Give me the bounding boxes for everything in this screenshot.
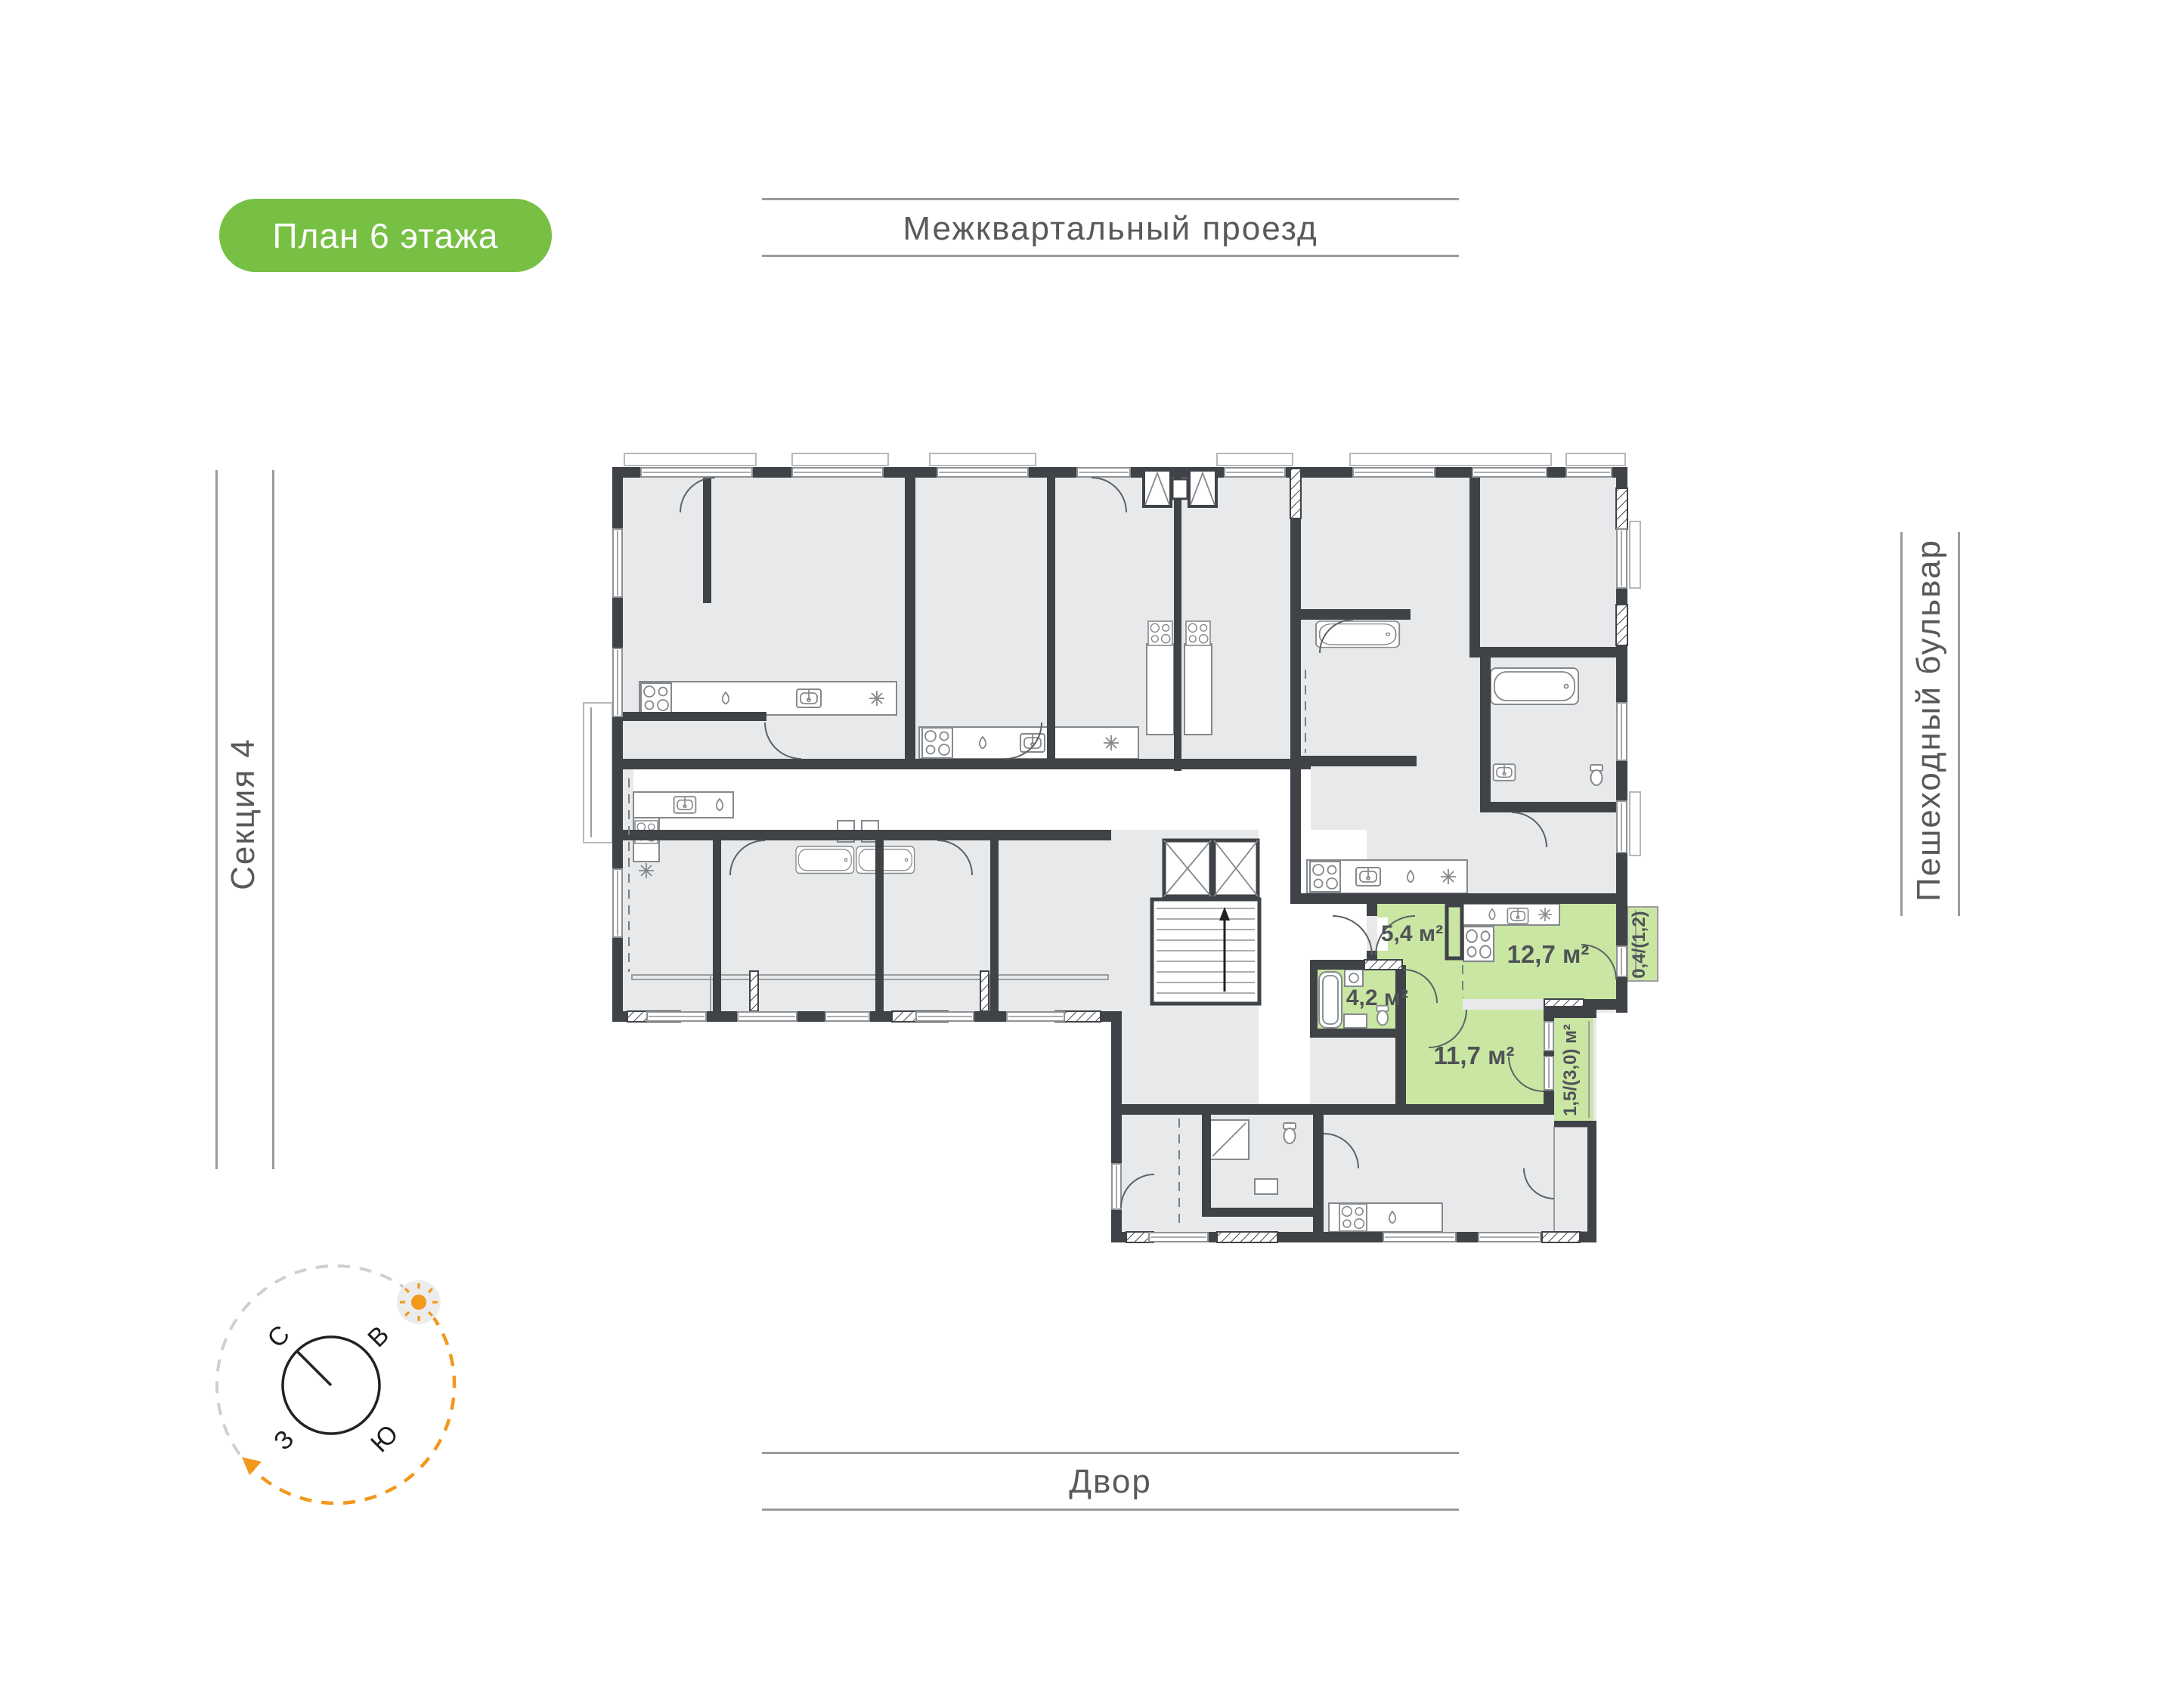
bedroom-area-label: 11,7 м² bbox=[1434, 1041, 1515, 1069]
stove-icon bbox=[1310, 862, 1340, 892]
kitchen-balcony-label: 0,4/(1,2) bbox=[1629, 911, 1649, 978]
fridge-icon bbox=[869, 691, 884, 706]
compass-east: В bbox=[362, 1320, 395, 1353]
washer-icon bbox=[1345, 970, 1363, 986]
bathtub bbox=[856, 846, 915, 874]
left-balcony bbox=[584, 703, 612, 843]
stove-icon bbox=[1148, 621, 1172, 645]
stove-icon bbox=[1463, 927, 1494, 961]
bathroom-area-label: 4,2 м² bbox=[1346, 986, 1408, 1010]
compass-west: З bbox=[268, 1425, 299, 1456]
balcony-slab bbox=[930, 453, 1036, 466]
sink-icon bbox=[674, 797, 696, 813]
balcony-slab bbox=[1350, 453, 1551, 466]
toilet-icon bbox=[1284, 1123, 1296, 1143]
balcony-slab bbox=[624, 453, 756, 466]
elevators bbox=[1164, 840, 1258, 896]
bedroom-balcony-label: 1,5/(3,0) м² bbox=[1560, 1024, 1581, 1116]
balcony-slab bbox=[1217, 453, 1293, 466]
stove-icon bbox=[1186, 621, 1210, 645]
stove-icon bbox=[922, 728, 952, 758]
sun-icon bbox=[411, 1295, 426, 1310]
fridge-icon bbox=[1441, 869, 1456, 884]
washbasin bbox=[1344, 1014, 1367, 1028]
sink-icon bbox=[1356, 868, 1380, 886]
kitchen-counter bbox=[639, 682, 897, 715]
sink-icon bbox=[1020, 734, 1045, 752]
balcony-slab bbox=[1566, 453, 1625, 466]
sink-icon bbox=[1507, 908, 1528, 924]
corridor-main bbox=[633, 769, 1311, 830]
balcony-slab bbox=[792, 453, 888, 466]
compass: С В З Ю bbox=[217, 1266, 454, 1503]
balcony-slab bbox=[1630, 792, 1640, 856]
bathtub bbox=[796, 846, 854, 874]
corridor-stub bbox=[1259, 965, 1310, 1104]
compass-arrowhead bbox=[242, 1457, 262, 1475]
toilet-icon bbox=[1590, 765, 1603, 785]
stove-icon bbox=[641, 683, 671, 713]
kitchen-counter bbox=[1147, 644, 1174, 735]
fridge-icon bbox=[639, 863, 654, 878]
floor-plan-svg: 5,4 м² 12,7 м² 4,2 м² 11,7 м² 0,4/(1,2) … bbox=[0, 0, 2177, 1708]
bathtub bbox=[1316, 621, 1399, 648]
fridge-icon bbox=[1104, 735, 1119, 750]
sink-icon bbox=[797, 689, 821, 707]
bathtub bbox=[1491, 668, 1578, 704]
kitchen-counter bbox=[1184, 644, 1212, 735]
compass-south: Ю bbox=[365, 1419, 404, 1458]
kitchen-area-label: 12,7 м² bbox=[1507, 940, 1590, 968]
stove-icon bbox=[1339, 1204, 1367, 1231]
staircase bbox=[1152, 899, 1259, 1004]
compass-north: С bbox=[262, 1320, 296, 1354]
sink-icon bbox=[1494, 764, 1516, 781]
floor-plan-page: План 6 этажа Межквартальный проезд Двор … bbox=[0, 0, 2177, 1708]
washbasin bbox=[1255, 1179, 1277, 1194]
hallway-area-label: 5,4 м² bbox=[1381, 921, 1443, 946]
balcony-slab bbox=[1630, 521, 1640, 588]
vent-duct bbox=[1447, 905, 1462, 958]
